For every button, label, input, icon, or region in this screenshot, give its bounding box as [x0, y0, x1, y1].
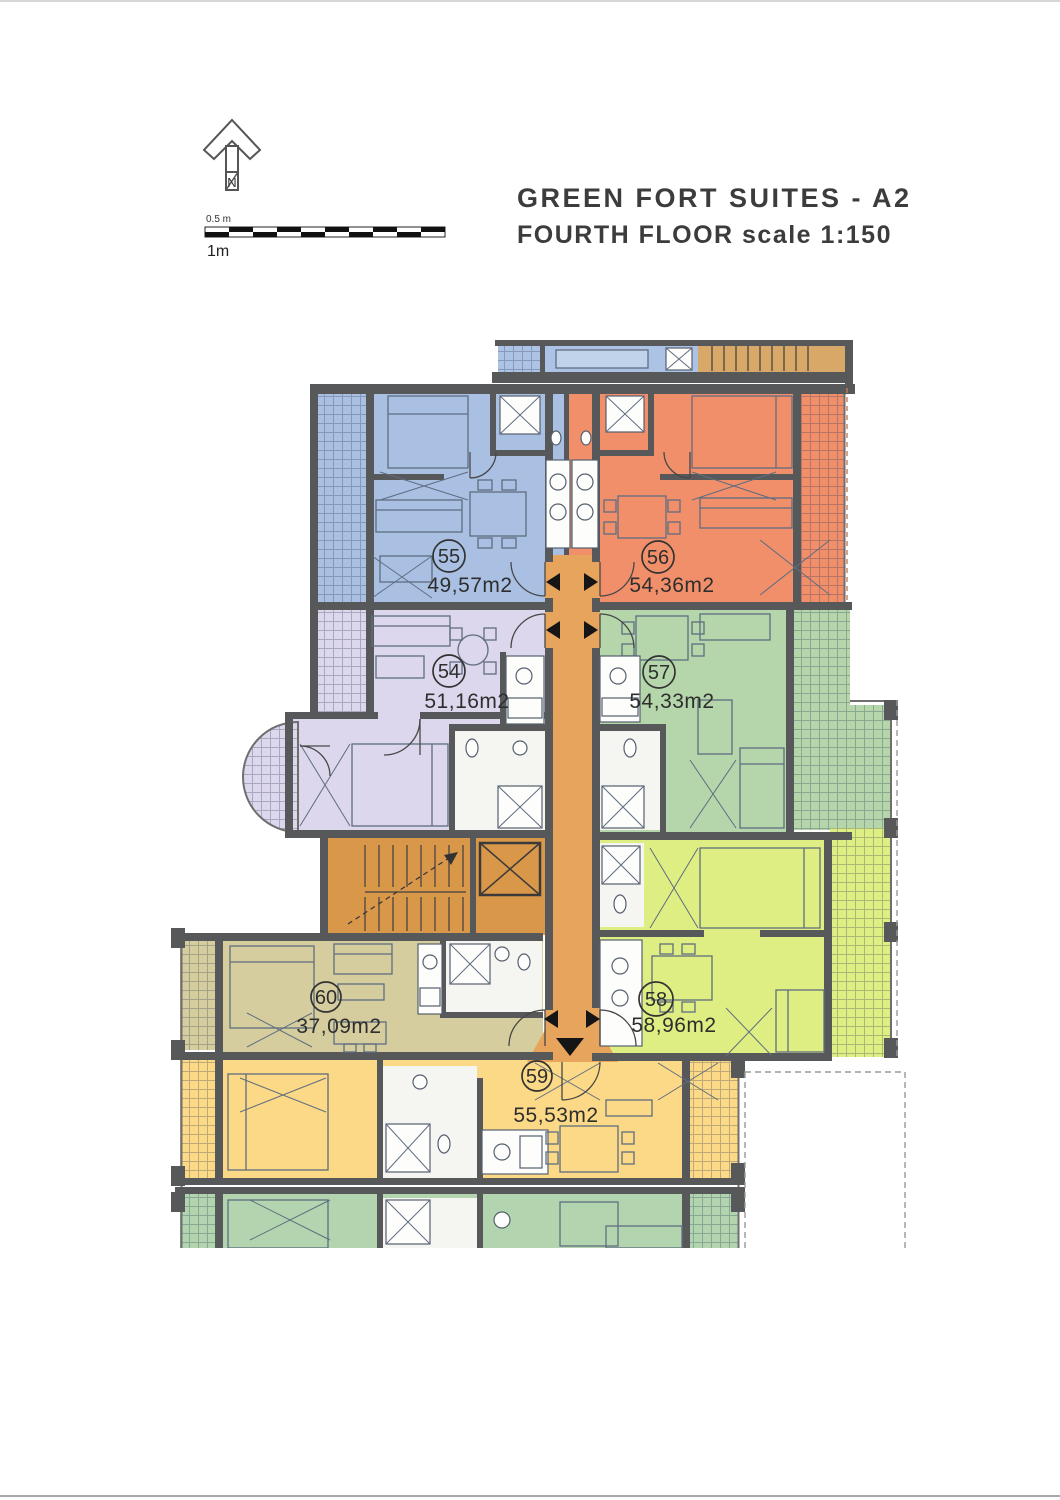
- unit-number: 57: [648, 662, 670, 684]
- stove: [520, 1136, 542, 1168]
- upper-floor-band: [498, 345, 845, 372]
- page-top-edge: [0, 0, 1060, 2]
- unit-number: 59: [526, 1066, 548, 1088]
- upper-floor-balcony-hatch: [498, 345, 540, 372]
- sink: [577, 474, 593, 490]
- unit-number: 54: [438, 661, 460, 683]
- unit-number: 55: [438, 546, 460, 568]
- shower: [498, 786, 542, 828]
- unit-area: 55,53m2: [513, 1104, 598, 1127]
- drawing-cutoff: [0, 1248, 1060, 1494]
- toilet: [518, 954, 530, 970]
- north-label: N: [227, 175, 236, 190]
- sink: [513, 741, 527, 755]
- stove: [577, 504, 593, 520]
- sink: [494, 1144, 510, 1160]
- sink: [612, 958, 628, 974]
- sink: [494, 1212, 510, 1228]
- floor-subtitle: FOURTH FLOOR scale 1:150: [517, 221, 892, 249]
- stove: [550, 504, 566, 520]
- adjacent-plot-dashed-boundary: [745, 1072, 905, 1250]
- floor-plan-drawing: GREEN FORT SUITES - A2 FOURTH FLOOR scal…: [0, 0, 1060, 1500]
- stove: [508, 698, 542, 718]
- upper-floor-shower: [666, 348, 692, 370]
- shower: [450, 944, 490, 984]
- scale-bar: 0.5 m 1m: [205, 214, 445, 260]
- shower: [386, 1200, 430, 1244]
- sink: [423, 955, 437, 969]
- toilet: [466, 739, 478, 757]
- stove: [420, 988, 440, 1006]
- toilet: [581, 431, 591, 445]
- toilet: [438, 1135, 450, 1153]
- unit-area: 37,09m2: [296, 1015, 381, 1038]
- project-title: GREEN FORT SUITES - A2: [517, 183, 912, 213]
- sink: [610, 668, 626, 684]
- unit-area: 54,36m2: [629, 574, 714, 597]
- shower: [602, 846, 640, 884]
- stairwell: [328, 838, 545, 935]
- stove: [612, 990, 628, 1006]
- unit-area: 49,57m2: [427, 574, 512, 597]
- sink: [550, 474, 566, 490]
- unit-area: 51,16m2: [424, 690, 509, 713]
- shower: [500, 396, 540, 434]
- scale-one-meter-label: 1m: [207, 243, 229, 260]
- title-block: GREEN FORT SUITES - A2 FOURTH FLOOR scal…: [517, 183, 912, 249]
- shower: [602, 786, 644, 828]
- toilet: [551, 431, 561, 445]
- sink: [516, 668, 532, 684]
- sink: [495, 947, 509, 961]
- unit-area: 54,33m2: [629, 690, 714, 713]
- scale-half-label: 0.5 m: [206, 214, 231, 225]
- toilet: [624, 739, 636, 757]
- floor-plan-page: GREEN FORT SUITES - A2 FOURTH FLOOR scal…: [0, 0, 1060, 1500]
- shower: [386, 1124, 430, 1172]
- upper-floor-furniture: [556, 350, 648, 368]
- page-bottom-edge: [0, 1495, 1060, 1497]
- shower: [606, 396, 644, 432]
- toilet: [614, 895, 626, 913]
- unit-number: 58: [645, 989, 667, 1011]
- unit-area: 58,96m2: [631, 1014, 716, 1037]
- north-compass: N: [204, 120, 260, 190]
- sink: [413, 1075, 427, 1089]
- unit-number: 56: [647, 547, 669, 569]
- unit-number: 60: [315, 987, 337, 1009]
